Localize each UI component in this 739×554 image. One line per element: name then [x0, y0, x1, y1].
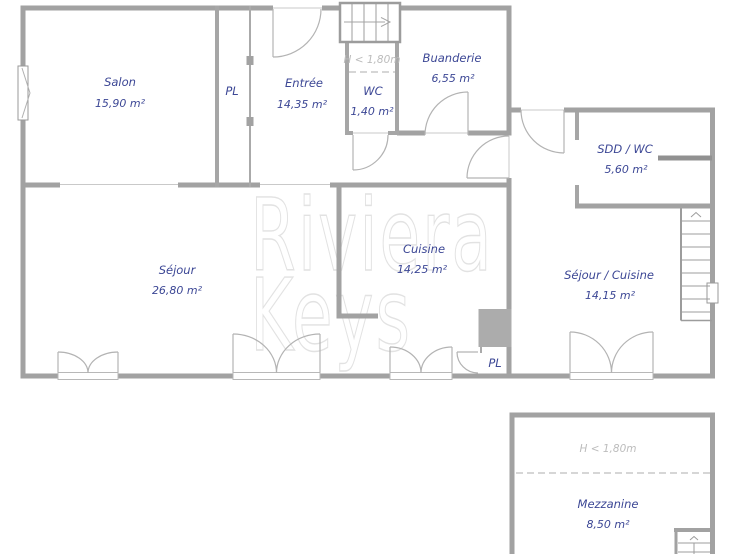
- stairs-upper: [340, 3, 400, 42]
- door-entree: [273, 9, 321, 57]
- stairs-right-arrow-icon: [691, 213, 701, 218]
- room-area-sdd-wc: 5,60 m²: [604, 164, 647, 175]
- stairs-mezzanine: [674, 529, 711, 554]
- walls-mezzanine: [510, 413, 716, 554]
- door-wc: [353, 135, 388, 170]
- height-note-mezzanine: H < 1,80m: [580, 444, 637, 455]
- room-area-cuisine: 14,25 m²: [397, 264, 447, 275]
- door-right-unit-entrance: [521, 110, 564, 153]
- room-label-buanderie: Buanderie: [423, 53, 482, 65]
- room-area-entree: 14,35 m²: [277, 99, 327, 110]
- french-door-cuisine: [390, 347, 452, 373]
- room-label-entree: Entrée: [285, 78, 323, 90]
- door-pl-cuisine: [457, 352, 478, 373]
- room-area-buanderie: 6,55 m²: [431, 73, 474, 84]
- window-salon: [18, 66, 30, 120]
- room-label-sejour: Séjour: [159, 265, 196, 277]
- room-label-sdd-wc: SDD / WC: [597, 144, 653, 156]
- room-label-cuisine: Cuisine: [403, 244, 445, 256]
- door-arcs: [273, 9, 564, 373]
- room-label-pl-cuisine: PL: [488, 358, 501, 370]
- sliding-door-pl: [247, 6, 254, 187]
- french-door-sejour-right: [233, 334, 320, 373]
- room-label-mezzanine: Mezzanine: [578, 499, 639, 511]
- room-area-sejour-cuisine: 14,15 m²: [585, 290, 635, 301]
- room-label-sejour-cuisine: Séjour / Cuisine: [564, 270, 654, 282]
- french-door-sejour-left: [58, 352, 118, 373]
- stairs-mezzanine-arrow-icon: [690, 537, 698, 541]
- room-label-wc: WC: [363, 86, 382, 98]
- room-area-wc: 1,40 m²: [350, 106, 393, 117]
- room-label-pl-hall: PL: [225, 86, 238, 98]
- stairs-right-unit: [681, 209, 712, 321]
- french-door-sejour-cuisine: [570, 332, 653, 373]
- floor-plan: Riviera Keys: [0, 0, 739, 554]
- door-connecting: [467, 136, 509, 178]
- room-area-salon: 15,90 m²: [95, 98, 145, 109]
- room-area-mezzanine: 8,50 m²: [586, 519, 629, 530]
- room-area-sejour: 26,80 m²: [152, 285, 202, 296]
- height-note-wc: H < 1,80m: [344, 55, 401, 66]
- door-buanderie: [425, 92, 468, 135]
- french-doors: [58, 332, 653, 373]
- room-label-salon: Salon: [104, 77, 136, 89]
- pillar-block: [479, 309, 512, 347]
